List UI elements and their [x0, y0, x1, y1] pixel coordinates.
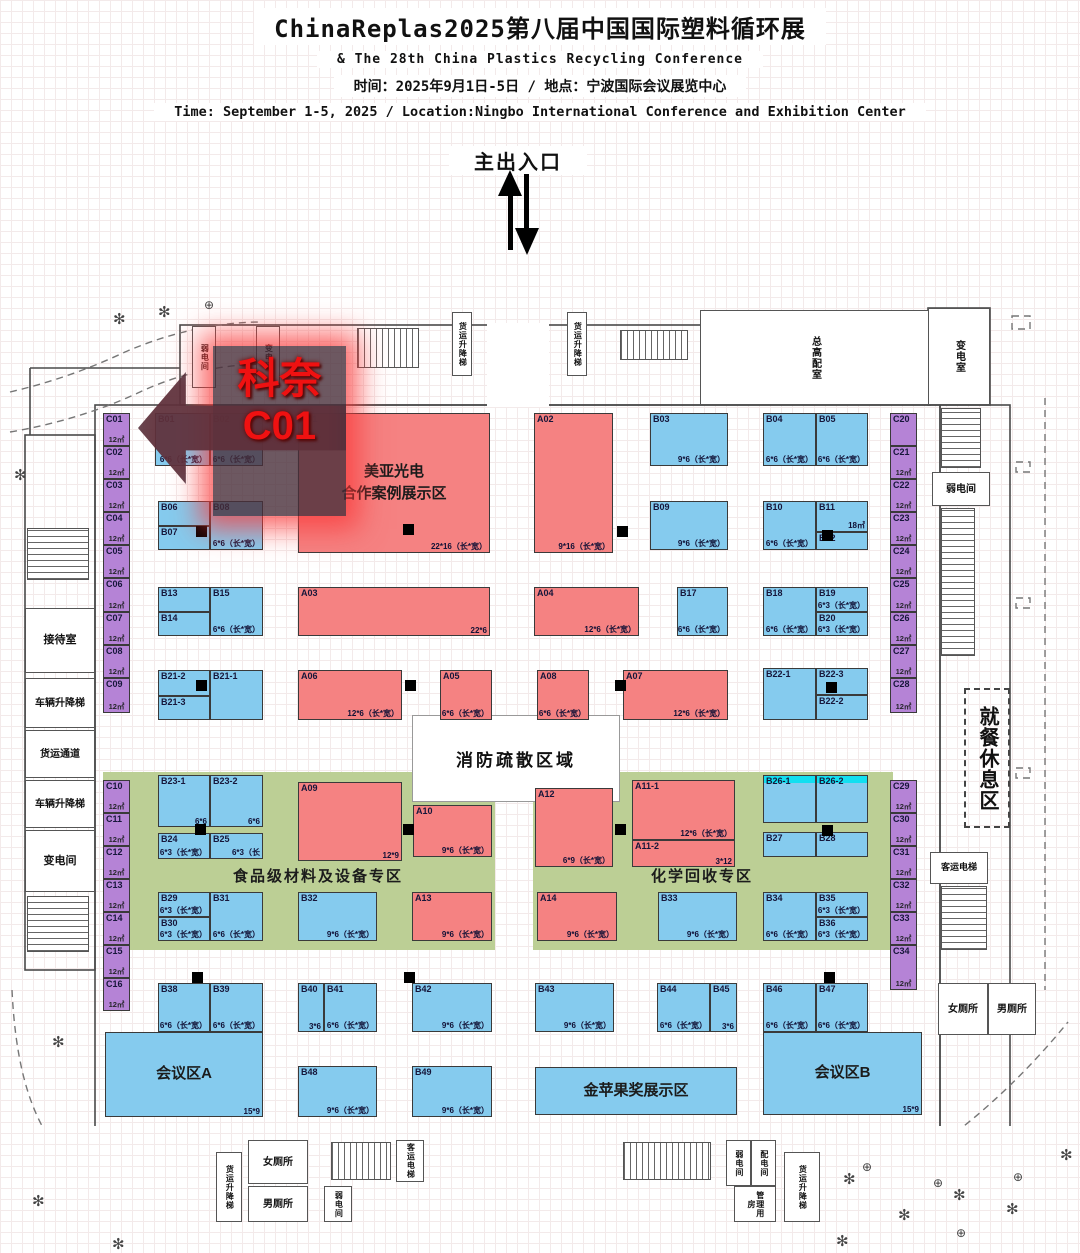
- booth-id: B21-2: [161, 671, 186, 681]
- room-label-7: 车辆升降梯: [25, 678, 95, 728]
- booth-id: A12: [538, 789, 555, 799]
- stairs-icon: [620, 330, 688, 360]
- stairs-icon: [331, 1142, 391, 1180]
- room-label-16: 货运升降梯: [216, 1152, 242, 1222]
- booth-c01: C0112㎡: [103, 413, 130, 446]
- booth-b21-3: B21-3: [158, 696, 210, 720]
- room-label-10: 变电间: [25, 830, 95, 892]
- booth-size: 6*6（长*宽）: [213, 929, 260, 940]
- event-time-location-en: Time: September 1-5, 2025 / Location:Nin…: [154, 103, 926, 121]
- booth-id: B34: [766, 893, 783, 903]
- booth-id: B35: [819, 893, 836, 903]
- booth-a10: A109*6（长*宽）: [413, 805, 492, 857]
- booth-id: A09: [301, 783, 318, 793]
- tree-icon: ✻: [1006, 1200, 1019, 1218]
- booth-a12: A126*9（长*宽）: [535, 788, 613, 867]
- booth-size: 6*6（长*宽）: [160, 1020, 207, 1031]
- booth-id: B41: [327, 984, 344, 994]
- booth-a11-1: A11-112*6（长*宽）: [632, 780, 735, 840]
- booth-a14: A149*6（长*宽）: [537, 892, 617, 941]
- pillar-marker: [826, 682, 837, 693]
- room-label-22: 配电间: [751, 1140, 776, 1186]
- booth-id: C20: [893, 414, 910, 424]
- booth-id: C23: [893, 513, 910, 523]
- booth-会议区b: 15*9会议区B: [763, 1032, 922, 1115]
- pillar-marker: [822, 530, 833, 541]
- booth-c11: C1112㎡: [103, 813, 130, 846]
- booth-a02: A029*16（长*宽）: [534, 413, 613, 553]
- booth-id: B29: [161, 893, 178, 903]
- booth-id: B22-1: [766, 669, 791, 679]
- room-label-5: 变电室: [928, 308, 990, 405]
- booth-b46: B466*6（长*宽）: [763, 983, 816, 1032]
- booth-area: 12㎡: [891, 666, 916, 677]
- booth-area: 12㎡: [891, 867, 916, 878]
- tree-icon: ✻: [158, 303, 171, 321]
- booth-size: 9*6（长*宽）: [567, 929, 614, 940]
- booth-size: 12*9: [383, 851, 399, 860]
- room-label-19: 弱电间: [324, 1186, 352, 1222]
- booth-c26: C2612㎡: [890, 612, 917, 645]
- booth-b30: B306*3（长*宽）: [158, 917, 210, 941]
- booth-会议区a: 15*9会议区A: [105, 1032, 263, 1117]
- stairs-icon: [27, 528, 89, 580]
- tree-icon: ✻: [112, 1235, 125, 1253]
- pillar-marker: [822, 825, 833, 836]
- booth-c20: C20: [890, 413, 917, 446]
- booth-id: B06: [161, 502, 178, 512]
- booth-id: B46: [766, 984, 783, 994]
- stairs-icon: [941, 408, 981, 468]
- room-label-24: 货运升降梯: [784, 1152, 820, 1222]
- booth-size: 6*3（长*宽）: [818, 905, 865, 916]
- booth-id: B30: [161, 918, 178, 928]
- booth-id: C30: [893, 814, 910, 824]
- booth-b47: B476*6（长*宽）: [816, 983, 868, 1032]
- booth-area: 12㎡: [891, 900, 916, 911]
- booth-b23-1: B23-16*6: [158, 775, 210, 827]
- booth-c09: C0912㎡: [103, 678, 130, 713]
- room-label-8: 货运通道: [25, 730, 95, 778]
- booth-title: 会议区A: [106, 1033, 262, 1116]
- lamp-icon: ⊕: [933, 1176, 943, 1190]
- booth-id: C16: [106, 979, 123, 989]
- pillar-marker: [403, 824, 414, 835]
- booth-size: 6*6（长*宽）: [818, 454, 865, 465]
- booth-c10: C1012㎡: [103, 780, 130, 813]
- booth-id: B42: [415, 984, 432, 994]
- booth-a05: A056*6（长*宽）: [440, 670, 492, 720]
- booth-id: B20: [819, 613, 836, 623]
- booth-b22-2: B22-2: [816, 695, 868, 720]
- booth-id: C24: [893, 546, 910, 556]
- booth-id: B13: [161, 588, 178, 598]
- booth-area: 12㎡: [891, 978, 916, 989]
- booth-c31: C3112㎡: [890, 846, 917, 879]
- booth-c28: C2812㎡: [890, 678, 917, 713]
- booth-b32: B329*6（长*宽）: [298, 892, 377, 941]
- promo-booth-number: C01: [213, 402, 346, 450]
- stairs-icon: [623, 1142, 711, 1180]
- room-label-13: 客运电梯: [930, 852, 988, 884]
- booth-id: A05: [443, 671, 460, 681]
- booth-size: 6*6（长*宽）: [442, 708, 489, 719]
- booth-id: B03: [653, 414, 670, 424]
- booth-id: B04: [766, 414, 783, 424]
- booth-b44: B446*6（长*宽）: [657, 983, 710, 1032]
- booth-b34: B346*6（长*宽）: [763, 892, 816, 941]
- booth-area: 12㎡: [891, 933, 916, 944]
- booth-id: B07: [161, 527, 178, 537]
- booth-size: 6*6（长*宽）: [766, 929, 813, 940]
- booth-a06: A0612*6（长*宽）: [298, 670, 402, 720]
- zone-label: 食品级材料及设备专区: [233, 865, 403, 886]
- header: ChinaReplas2025第八届中国国际塑料循环展 & The 28th C…: [0, 0, 1080, 121]
- lamp-icon: ⊕: [956, 1226, 966, 1240]
- booth-id: B48: [301, 1067, 318, 1077]
- booth-b25: B256*3（长: [210, 833, 263, 859]
- booth-size: 6*3（长*宽）: [160, 847, 207, 858]
- booth-area: 12㎡: [104, 999, 129, 1010]
- booth-b21-1: B21-1: [210, 670, 263, 720]
- pillar-marker: [404, 972, 415, 983]
- booth-size: 6*6（长*宽）: [213, 538, 260, 549]
- booth-id: C27: [893, 646, 910, 656]
- tree-icon: ✻: [14, 466, 27, 484]
- booth-id: B40: [301, 984, 318, 994]
- booth-id: C03: [106, 480, 123, 490]
- booth-size: 12*6（长*宽）: [680, 828, 732, 839]
- booth-id: B22-2: [819, 696, 844, 706]
- pillar-marker: [405, 680, 416, 691]
- booth-id: A06: [301, 671, 318, 681]
- room-label-15: 男厕所: [988, 983, 1036, 1035]
- booth-id: B38: [161, 984, 178, 994]
- booth-id: C08: [106, 646, 123, 656]
- booth-b31: B316*6（长*宽）: [210, 892, 263, 941]
- booth-area: 12㎡: [104, 966, 129, 977]
- booth-b49: B499*6（长*宽）: [412, 1066, 492, 1117]
- entrance-direction-arrows-icon: [496, 170, 544, 255]
- booth-size: 6*3（长: [232, 847, 260, 858]
- booth-b15: B156*6（长*宽）: [210, 587, 263, 636]
- booth-area: 12㎡: [104, 600, 129, 611]
- booth-a09: A0912*9: [298, 782, 402, 861]
- booth-size: 6*6（长*宽）: [678, 624, 725, 635]
- booth-a04: A0412*6（长*宽）: [534, 587, 639, 636]
- booth-c29: C2912㎡: [890, 780, 917, 813]
- booth-id: C29: [893, 781, 910, 791]
- booth-c13: C1312㎡: [103, 879, 130, 912]
- booth-id: B19: [819, 588, 836, 598]
- booth-id: B47: [819, 984, 836, 994]
- booth-id: C33: [893, 913, 910, 923]
- booth-area: 12㎡: [104, 500, 129, 511]
- tree-icon: ✻: [836, 1232, 849, 1250]
- booth-id: B22-3: [819, 669, 844, 679]
- room-label-2: 货运升降梯: [452, 312, 472, 376]
- booth-c21: C2112㎡: [890, 446, 917, 479]
- booth-title: 会议区B: [764, 1033, 921, 1114]
- booth-c22: C2212㎡: [890, 479, 917, 512]
- booth-id: B05: [819, 414, 836, 424]
- booth-size: 6*6（长*宽）: [327, 1020, 374, 1031]
- booth-a08: A086*6（长*宽）: [537, 670, 589, 720]
- booth-area: 12㎡: [891, 566, 916, 577]
- booth-id: C14: [106, 913, 123, 923]
- booth-id: A03: [301, 588, 318, 598]
- booth-size: 6*6（长*宽）: [539, 708, 586, 719]
- tree-icon: ✻: [113, 310, 126, 328]
- booth-size: 18㎡: [848, 520, 865, 531]
- booth-area: 12㎡: [891, 500, 916, 511]
- lamp-icon: ⊕: [204, 298, 214, 312]
- room-label-3: 货运升降梯: [567, 312, 587, 376]
- booth-area: 12㎡: [891, 533, 916, 544]
- booth-size: 6*6（长*宽）: [766, 538, 813, 549]
- booth-c32: C3212㎡: [890, 879, 917, 912]
- lamp-icon: ⊕: [862, 1160, 872, 1174]
- booth-id: B14: [161, 613, 178, 623]
- booth-b36: B366*3（长*宽）: [816, 917, 868, 941]
- pillar-marker: [196, 680, 207, 691]
- booth-area: 12㎡: [104, 801, 129, 812]
- room-label-18: 男厕所: [248, 1186, 308, 1222]
- booth-id: B44: [660, 984, 677, 994]
- booth-size: 12*6（长*宽）: [584, 624, 636, 635]
- stairs-icon: [941, 508, 975, 656]
- room-label-4: 总高配室: [700, 310, 930, 405]
- booth-id: C11: [106, 814, 122, 824]
- booth-c34: C3412㎡: [890, 945, 917, 990]
- tree-icon: ✻: [1060, 1146, 1073, 1164]
- booth-b14: B14: [158, 612, 210, 636]
- booth-b41: B416*6（长*宽）: [324, 983, 377, 1032]
- booth-id: C02: [106, 447, 123, 457]
- booth-id: B26-2: [819, 776, 844, 786]
- booth-area: 12㎡: [891, 467, 916, 478]
- booth-b11: B1118㎡: [816, 501, 868, 532]
- booth-b22-1: B22-1: [763, 668, 816, 720]
- booth-id: B21-3: [161, 697, 186, 707]
- booth-id: C05: [106, 546, 123, 556]
- booth-id: B43: [538, 984, 555, 994]
- booth-area: 12㎡: [104, 467, 129, 478]
- booth-金苹果奖展示区: 金苹果奖展示区: [535, 1067, 737, 1115]
- booth-id: B49: [415, 1067, 432, 1077]
- booth-size: 3*6: [309, 1022, 321, 1031]
- booth-id: A04: [537, 588, 554, 598]
- room-label-11: 弱电间: [932, 472, 990, 506]
- booth-b45: B453*6: [710, 983, 737, 1032]
- booth-id: B21-1: [213, 671, 238, 681]
- booth-size: 9*6（长*宽）: [678, 538, 725, 549]
- stairs-icon: [357, 328, 419, 368]
- booth-id: B17: [680, 588, 697, 598]
- booth-a07: A0712*6（长*宽）: [623, 670, 728, 720]
- booth-size: 6*6（长*宽）: [660, 1020, 707, 1031]
- booth-id: B23-2: [213, 776, 238, 786]
- booth-size: 6*3（长*宽）: [818, 929, 865, 940]
- booth-id: B27: [766, 833, 783, 843]
- booth-id: B26-1: [766, 776, 791, 786]
- booth-size: 6*6（长*宽）: [766, 624, 813, 635]
- room-label-6: 接待室: [25, 608, 95, 673]
- booth-b03: B039*6（长*宽）: [650, 413, 728, 466]
- booth-size: 9*6（长*宽）: [442, 845, 489, 856]
- booth-c33: C3312㎡: [890, 912, 917, 945]
- booth-b18: B186*6（长*宽）: [763, 587, 816, 636]
- booth-c07: C0712㎡: [103, 612, 130, 645]
- pillar-marker: [615, 824, 626, 835]
- booth-size: 22*6: [471, 626, 487, 635]
- booth-c02: C0212㎡: [103, 446, 130, 479]
- booth-c27: C2712㎡: [890, 645, 917, 678]
- booth-size: 12*6（长*宽）: [347, 708, 399, 719]
- room-label-14: 女厕所: [938, 983, 988, 1035]
- booth-id: A14: [540, 893, 557, 903]
- booth-b38: B386*6（长*宽）: [158, 983, 210, 1032]
- booth-id: B18: [766, 588, 783, 598]
- booth-title: 金苹果奖展示区: [536, 1068, 736, 1114]
- booth-c30: C3012㎡: [890, 813, 917, 846]
- booth-b22-3: B22-3: [816, 668, 868, 695]
- promo-text: 科奈 C01: [213, 356, 346, 450]
- booth-id: C25: [893, 579, 910, 589]
- page-subtitle: & The 28th China Plastics Recycling Conf…: [317, 51, 763, 68]
- booth-area: 12㎡: [104, 834, 129, 845]
- entrance-opening: [487, 323, 549, 407]
- room-label-12: 就餐休息区: [964, 688, 1010, 828]
- booth-b35: B356*3（长*宽）: [816, 892, 868, 917]
- booth-b27: B27: [763, 832, 816, 857]
- booth-id: A08: [540, 671, 557, 681]
- booth-b19: B196*3（长*宽）: [816, 587, 868, 612]
- tree-icon: ✻: [898, 1206, 911, 1224]
- booth-id: A07: [626, 671, 643, 681]
- booth-id: C01: [106, 414, 123, 424]
- booth-id: C12: [106, 847, 123, 857]
- booth-area: 12㎡: [104, 867, 129, 878]
- booth-c24: C2412㎡: [890, 545, 917, 578]
- pillar-marker: [192, 972, 203, 983]
- booth-c12: C1212㎡: [103, 846, 130, 879]
- booth-id: C06: [106, 579, 123, 589]
- booth-size: 9*6（长*宽）: [442, 929, 489, 940]
- booth-size: 6*6: [248, 817, 260, 826]
- booth-id: C15: [106, 946, 123, 956]
- booth-id: B25: [213, 834, 230, 844]
- booth-id: A11-1: [635, 781, 659, 791]
- booth-area: 12㎡: [891, 633, 916, 644]
- room-label-20: 客运电梯: [396, 1140, 424, 1182]
- booth-size: 6*6（长*宽）: [766, 454, 813, 465]
- booth-id: C09: [106, 679, 123, 689]
- booth-c06: C0612㎡: [103, 578, 130, 612]
- booth-id: C13: [106, 880, 123, 890]
- booth-b39: B396*6（长*宽）: [210, 983, 263, 1032]
- tree-icon: ✻: [953, 1186, 966, 1204]
- booth-id: A13: [415, 893, 432, 903]
- booth-size: 6*6（长*宽）: [818, 1020, 865, 1031]
- booth-b40: B403*6: [298, 983, 324, 1032]
- booth-size: 3*12: [716, 857, 732, 866]
- booth-id: B32: [301, 893, 318, 903]
- booth-id: C07: [106, 613, 123, 623]
- booth-id: B33: [661, 893, 678, 903]
- booth-c05: C0512㎡: [103, 545, 130, 578]
- booth-size: 9*6（长*宽）: [687, 929, 734, 940]
- booth-size: 6*3（长*宽）: [818, 624, 865, 635]
- booth-id: B15: [213, 588, 230, 598]
- page-title: ChinaReplas2025第八届中国国际塑料循环展: [254, 8, 826, 45]
- booth-size: 9*16（长*宽）: [558, 541, 610, 552]
- promo-exhibitor-name: 科奈: [213, 356, 346, 402]
- floor-plan: 消防疏散区域 主出入口 科奈 C01 食品级材料及设备专区化学回收专区B016*…: [0, 140, 1080, 1126]
- room-label-9: 车辆升降梯: [25, 780, 95, 828]
- room-label-23: 管理用房: [734, 1186, 776, 1222]
- booth-size: 9*6（长*宽）: [564, 1020, 611, 1031]
- zone-label: 化学回收专区: [651, 865, 753, 886]
- booth-id: C10: [106, 781, 123, 791]
- booth-a11-2: A11-23*12: [632, 840, 735, 867]
- booth-id: C32: [893, 880, 910, 890]
- stairs-icon: [27, 896, 89, 952]
- booth-id: C34: [893, 946, 910, 956]
- booth-area: 12㎡: [891, 801, 916, 812]
- pillar-marker: [403, 524, 414, 535]
- booth-id: B09: [653, 502, 670, 512]
- booth-id: B36: [819, 918, 836, 928]
- booth-id: C26: [893, 613, 910, 623]
- tree-icon: ✻: [843, 1170, 856, 1188]
- event-time-location-cn: 时间：2025年9月1日-5日 / 地点：宁波国际会议展览中心: [334, 75, 747, 97]
- booth-b42: B429*6（长*宽）: [412, 983, 492, 1032]
- booth-id: C21: [893, 447, 910, 457]
- pillar-marker: [195, 824, 206, 835]
- booth-b33: B339*6（长*宽）: [658, 892, 737, 941]
- booth-id: B31: [213, 893, 230, 903]
- booth-c16: C1612㎡: [103, 978, 130, 1011]
- booth-area: 12㎡: [104, 900, 129, 911]
- booth-area: 12㎡: [104, 701, 129, 712]
- booth-size: 9*6（长*宽）: [327, 929, 374, 940]
- lamp-icon: ⊕: [1013, 1170, 1023, 1184]
- booth-id: B39: [213, 984, 230, 994]
- booth-area: 12㎡: [104, 633, 129, 644]
- booth-size: 6*6（长*宽）: [213, 1020, 260, 1031]
- booth-c23: C2312㎡: [890, 512, 917, 545]
- booth-c15: C1512㎡: [103, 945, 130, 978]
- tree-icon: ✻: [32, 1192, 45, 1210]
- stairs-icon: [941, 886, 987, 950]
- booth-a03: A0322*6: [298, 587, 490, 636]
- booth-id: A02: [537, 414, 554, 424]
- room-label-17: 女厕所: [248, 1140, 308, 1184]
- fire-evacuation-label: 消防疏散区域: [456, 746, 576, 771]
- booth-id: B10: [766, 502, 783, 512]
- booth-b26-1: B26-1: [763, 775, 816, 823]
- pillar-marker: [615, 680, 626, 691]
- booth-area: 12㎡: [104, 666, 129, 677]
- booth-size: 3*6: [722, 1022, 734, 1031]
- booth-size: 6*3（长*宽）: [160, 905, 207, 916]
- booth-c04: C0412㎡: [103, 512, 130, 545]
- booth-size: 6*6（长*宽）: [213, 624, 260, 635]
- booth-area: 12㎡: [104, 566, 129, 577]
- booth-id: C04: [106, 513, 123, 523]
- booth-b24: B246*3（长*宽）: [158, 833, 210, 859]
